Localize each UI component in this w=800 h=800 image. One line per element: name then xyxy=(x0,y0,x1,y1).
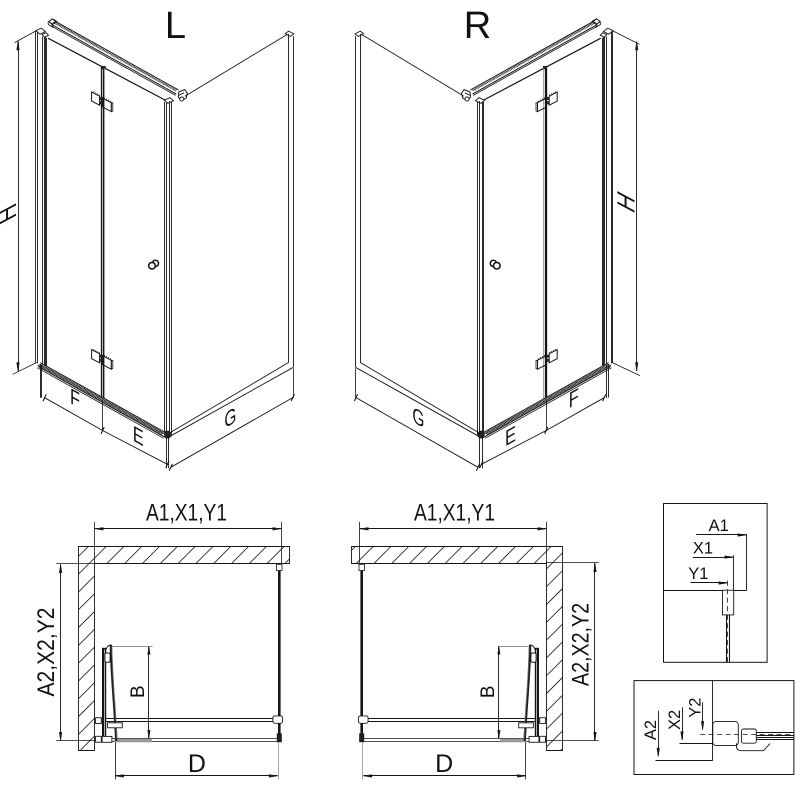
svg-text:B: B xyxy=(128,685,149,698)
svg-text:H: H xyxy=(612,187,640,218)
svg-text:L: L xyxy=(165,5,186,47)
svg-text:A2,X2,Y2: A2,X2,Y2 xyxy=(33,608,60,697)
svg-text:D: D xyxy=(188,750,206,778)
svg-text:A1: A1 xyxy=(709,517,729,535)
svg-text:A2,X2,Y2: A2,X2,Y2 xyxy=(568,603,595,686)
svg-text:D: D xyxy=(435,750,453,778)
svg-text:G: G xyxy=(412,402,424,434)
svg-text:A1,X1,Y1: A1,X1,Y1 xyxy=(146,500,227,527)
svg-text:F: F xyxy=(70,384,80,414)
svg-text:Y2: Y2 xyxy=(686,698,704,718)
svg-text:A1,X1,Y1: A1,X1,Y1 xyxy=(414,500,495,527)
svg-text:X1: X1 xyxy=(693,539,713,557)
svg-text:R: R xyxy=(464,5,491,47)
svg-text:A2: A2 xyxy=(642,720,660,740)
svg-text:G: G xyxy=(224,402,236,434)
svg-text:F: F xyxy=(569,384,579,414)
svg-text:B: B xyxy=(478,685,499,698)
svg-text:X2: X2 xyxy=(666,710,684,730)
svg-text:Y1: Y1 xyxy=(688,565,708,583)
